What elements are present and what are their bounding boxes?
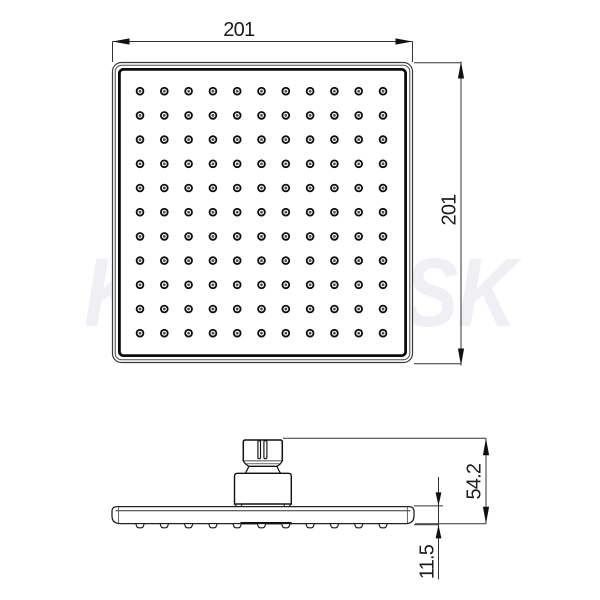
- svg-text:54.2: 54.2: [463, 463, 485, 499]
- svg-text:201: 201: [223, 19, 255, 41]
- svg-text:201: 201: [439, 194, 461, 226]
- svg-text:11.5: 11.5: [417, 544, 439, 579]
